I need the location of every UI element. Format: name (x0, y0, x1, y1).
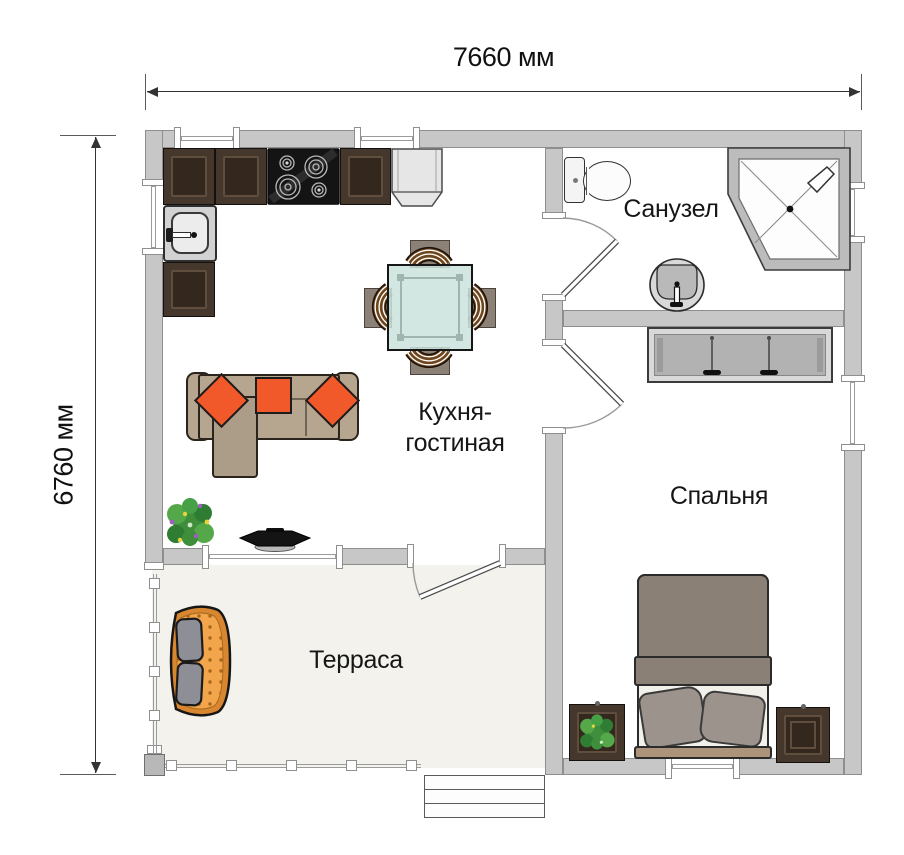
bed-blanket (637, 574, 769, 658)
frame-corner (456, 334, 463, 341)
width-dimension-line (147, 91, 860, 92)
kitchen-cabinet (163, 148, 215, 205)
railing-post (346, 760, 357, 771)
arrow-down-icon (91, 762, 101, 773)
arrow-up-icon (91, 137, 101, 148)
kitchen-cabinet (215, 148, 267, 205)
terrace-railing-left (153, 574, 157, 756)
window-top-2 (357, 130, 417, 148)
window-glass (361, 136, 413, 141)
railing-post (166, 760, 177, 771)
bathroom-door-icon (555, 213, 627, 301)
railing-post (149, 622, 160, 633)
window-cap (841, 444, 865, 451)
wall-top (145, 130, 862, 148)
toilet-seat-line (586, 167, 589, 195)
terrace-sofa-icon (162, 601, 236, 721)
kitchen-cabinet (340, 148, 391, 205)
table-frame (400, 277, 460, 338)
bedroom-door-icon (555, 341, 631, 433)
chair-back-icon (405, 236, 453, 266)
wardrobe-inner (654, 334, 826, 376)
kitchen-cabinet (163, 262, 215, 317)
arrow-left-icon (147, 87, 158, 97)
window-cap (336, 545, 343, 569)
fridge-icon (391, 148, 443, 207)
wardrobe-icon (647, 327, 833, 383)
nightstand (776, 707, 830, 763)
arrow-right-icon (849, 87, 860, 97)
bed-blanket-fold (634, 656, 772, 686)
kitchen-living-label-line2: гостиная (380, 428, 530, 459)
terrace-door-icon (406, 546, 506, 606)
chair-back-icon (469, 283, 499, 331)
terrace-label: Терраса (281, 645, 431, 676)
dim-tick (60, 774, 116, 775)
entrance-steps-icon (424, 776, 545, 822)
nightstand-inner-frame (790, 721, 816, 749)
wardrobe-side-panel (817, 338, 823, 372)
step (424, 775, 545, 790)
window-left (145, 182, 163, 252)
window-glass (850, 382, 855, 444)
bed-pillow (637, 684, 709, 750)
sink-dot (191, 232, 197, 238)
step (424, 803, 545, 818)
window-top-1 (177, 130, 237, 148)
sofa-seat-divider (305, 400, 307, 436)
bathroom-label: Санузел (596, 194, 746, 225)
kitchen-sink-icon (163, 205, 217, 262)
dining-table-icon (387, 264, 473, 351)
window-right-bedroom (844, 378, 862, 448)
stove-icon (267, 148, 340, 205)
toilet-tank (564, 157, 585, 203)
wardrobe-side-panel (657, 338, 663, 372)
width-dimension-label: 7660 мм (145, 42, 862, 73)
window-bedroom-bottom (668, 758, 737, 775)
chair-back-icon (405, 349, 453, 379)
tv-icon (236, 527, 314, 553)
railing-corner-post (144, 754, 165, 776)
height-dimension-label: 6760 мм (49, 404, 80, 505)
dim-tick (861, 74, 862, 110)
bedroom-label: Спальня (644, 481, 794, 512)
railing-post (406, 760, 417, 771)
frame-corner (397, 274, 404, 281)
frame-corner (397, 334, 404, 341)
railing-post (149, 666, 160, 677)
railing-post (226, 760, 237, 771)
plant-icon (575, 710, 619, 754)
toilet-button (573, 178, 578, 183)
kitchen-living-label: Кухня- гостиная (380, 397, 530, 458)
step (424, 789, 545, 804)
window-glass (151, 186, 156, 248)
wardrobe-divider (711, 338, 713, 372)
plant-icon (160, 492, 220, 552)
window-glass (672, 764, 733, 769)
railing-post (286, 760, 297, 771)
kitchen-living-label-line1: Кухня- (380, 397, 530, 428)
window-cap (841, 375, 865, 382)
frame-corner (456, 274, 463, 281)
window-glass (181, 136, 233, 141)
dim-tick (145, 74, 146, 110)
dim-tick (60, 135, 116, 136)
washbasin-icon (647, 257, 707, 315)
knob-icon (801, 704, 806, 709)
floor-plan: 7660 мм 6760 мм (0, 0, 904, 855)
sofa-pillow (255, 377, 292, 414)
railing-post (149, 710, 160, 721)
wall-end-cap (144, 562, 164, 570)
railing-post (149, 578, 160, 589)
knob-icon (595, 701, 600, 706)
window-glass (209, 554, 336, 559)
sink-spout (172, 232, 191, 238)
bed-headboard (634, 746, 772, 759)
wardrobe-divider (768, 338, 770, 372)
height-dimension-line (95, 137, 96, 773)
bed-pillow (698, 689, 767, 748)
